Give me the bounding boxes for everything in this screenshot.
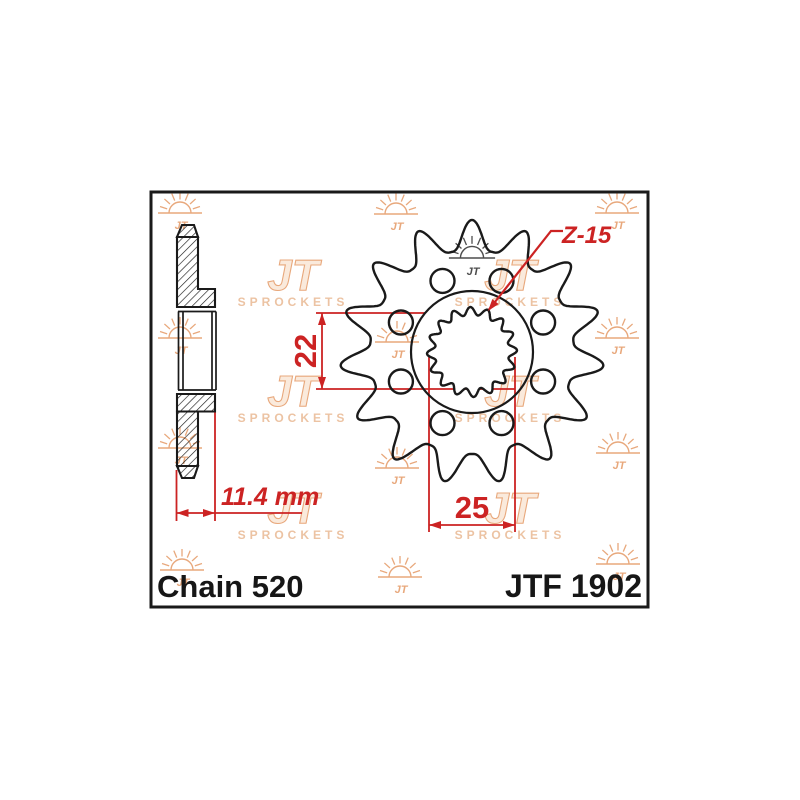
svg-text:JT: JT [392, 349, 406, 361]
svg-text:JT: JT [391, 221, 405, 233]
svg-text:SPROCKETS: SPROCKETS [455, 528, 566, 542]
svg-text:JT: JT [267, 367, 321, 416]
lightening-hole [389, 311, 413, 335]
svg-text:JT: JT [612, 220, 626, 232]
lightening-hole [431, 411, 455, 435]
svg-text:JT: JT [467, 266, 481, 278]
drawing-canvas: JTJTJTJTJTJTJTJTJTJTJTJTJTJTSPROCKETSJTS… [0, 0, 800, 800]
lightening-hole [531, 311, 555, 335]
lightening-hole [431, 269, 455, 293]
dimension-arrowhead [318, 313, 326, 325]
chain-size-label: Chain 520 [157, 569, 303, 604]
jt-sprockets-watermark: JTSPROCKETS [238, 367, 349, 425]
side-lower-flange [177, 394, 215, 412]
side-upper-body [177, 237, 215, 307]
svg-text:SPROCKETS: SPROCKETS [238, 411, 349, 425]
dimension-arrowhead [318, 377, 326, 389]
side-tooth-tip-top [177, 225, 198, 237]
bore-inner-diameter-label: 22 [288, 334, 323, 368]
jt-sun-watermark: JT [374, 193, 418, 233]
svg-text:JT: JT [175, 345, 189, 357]
dimension-arrowhead [177, 509, 189, 517]
svg-text:SPROCKETS: SPROCKETS [238, 295, 349, 309]
jt-sun-watermark: JT [596, 432, 640, 472]
sprocket-technical-drawing: JTJTJTJTJTJTJTJTJTJTJTJTJTJTSPROCKETSJTS… [0, 0, 800, 800]
jt-sun-watermark: JT [375, 447, 419, 487]
jt-sprockets-watermark: JTSPROCKETS [238, 251, 349, 309]
part-number-label: JTF 1902 [505, 568, 642, 604]
spline-bore [427, 307, 517, 397]
dimension-arrowhead [203, 509, 215, 517]
drawing-border [151, 192, 648, 607]
svg-text:JT: JT [392, 475, 406, 487]
jt-sun-watermark: JT [378, 556, 422, 596]
side-lower-body [177, 412, 198, 467]
jt-sprockets-watermark: JTSPROCKETS [455, 251, 566, 309]
teeth-count-label: Z-15 [561, 222, 612, 249]
thickness-label: 11.4 mm [221, 483, 319, 511]
jt-sun-watermark: JT [595, 317, 639, 357]
spline-outer-diameter-label: 25 [455, 490, 489, 525]
side-tooth-tip-bottom [177, 466, 198, 478]
svg-text:JT: JT [613, 460, 627, 472]
svg-text:JT: JT [395, 584, 409, 596]
svg-text:SPROCKETS: SPROCKETS [238, 528, 349, 542]
svg-text:JT: JT [267, 251, 321, 300]
jt-sun-watermark: JT [158, 317, 202, 357]
dimension-arrowhead [429, 521, 441, 529]
sprocket-side-view [177, 225, 216, 478]
svg-text:JT: JT [612, 345, 626, 357]
